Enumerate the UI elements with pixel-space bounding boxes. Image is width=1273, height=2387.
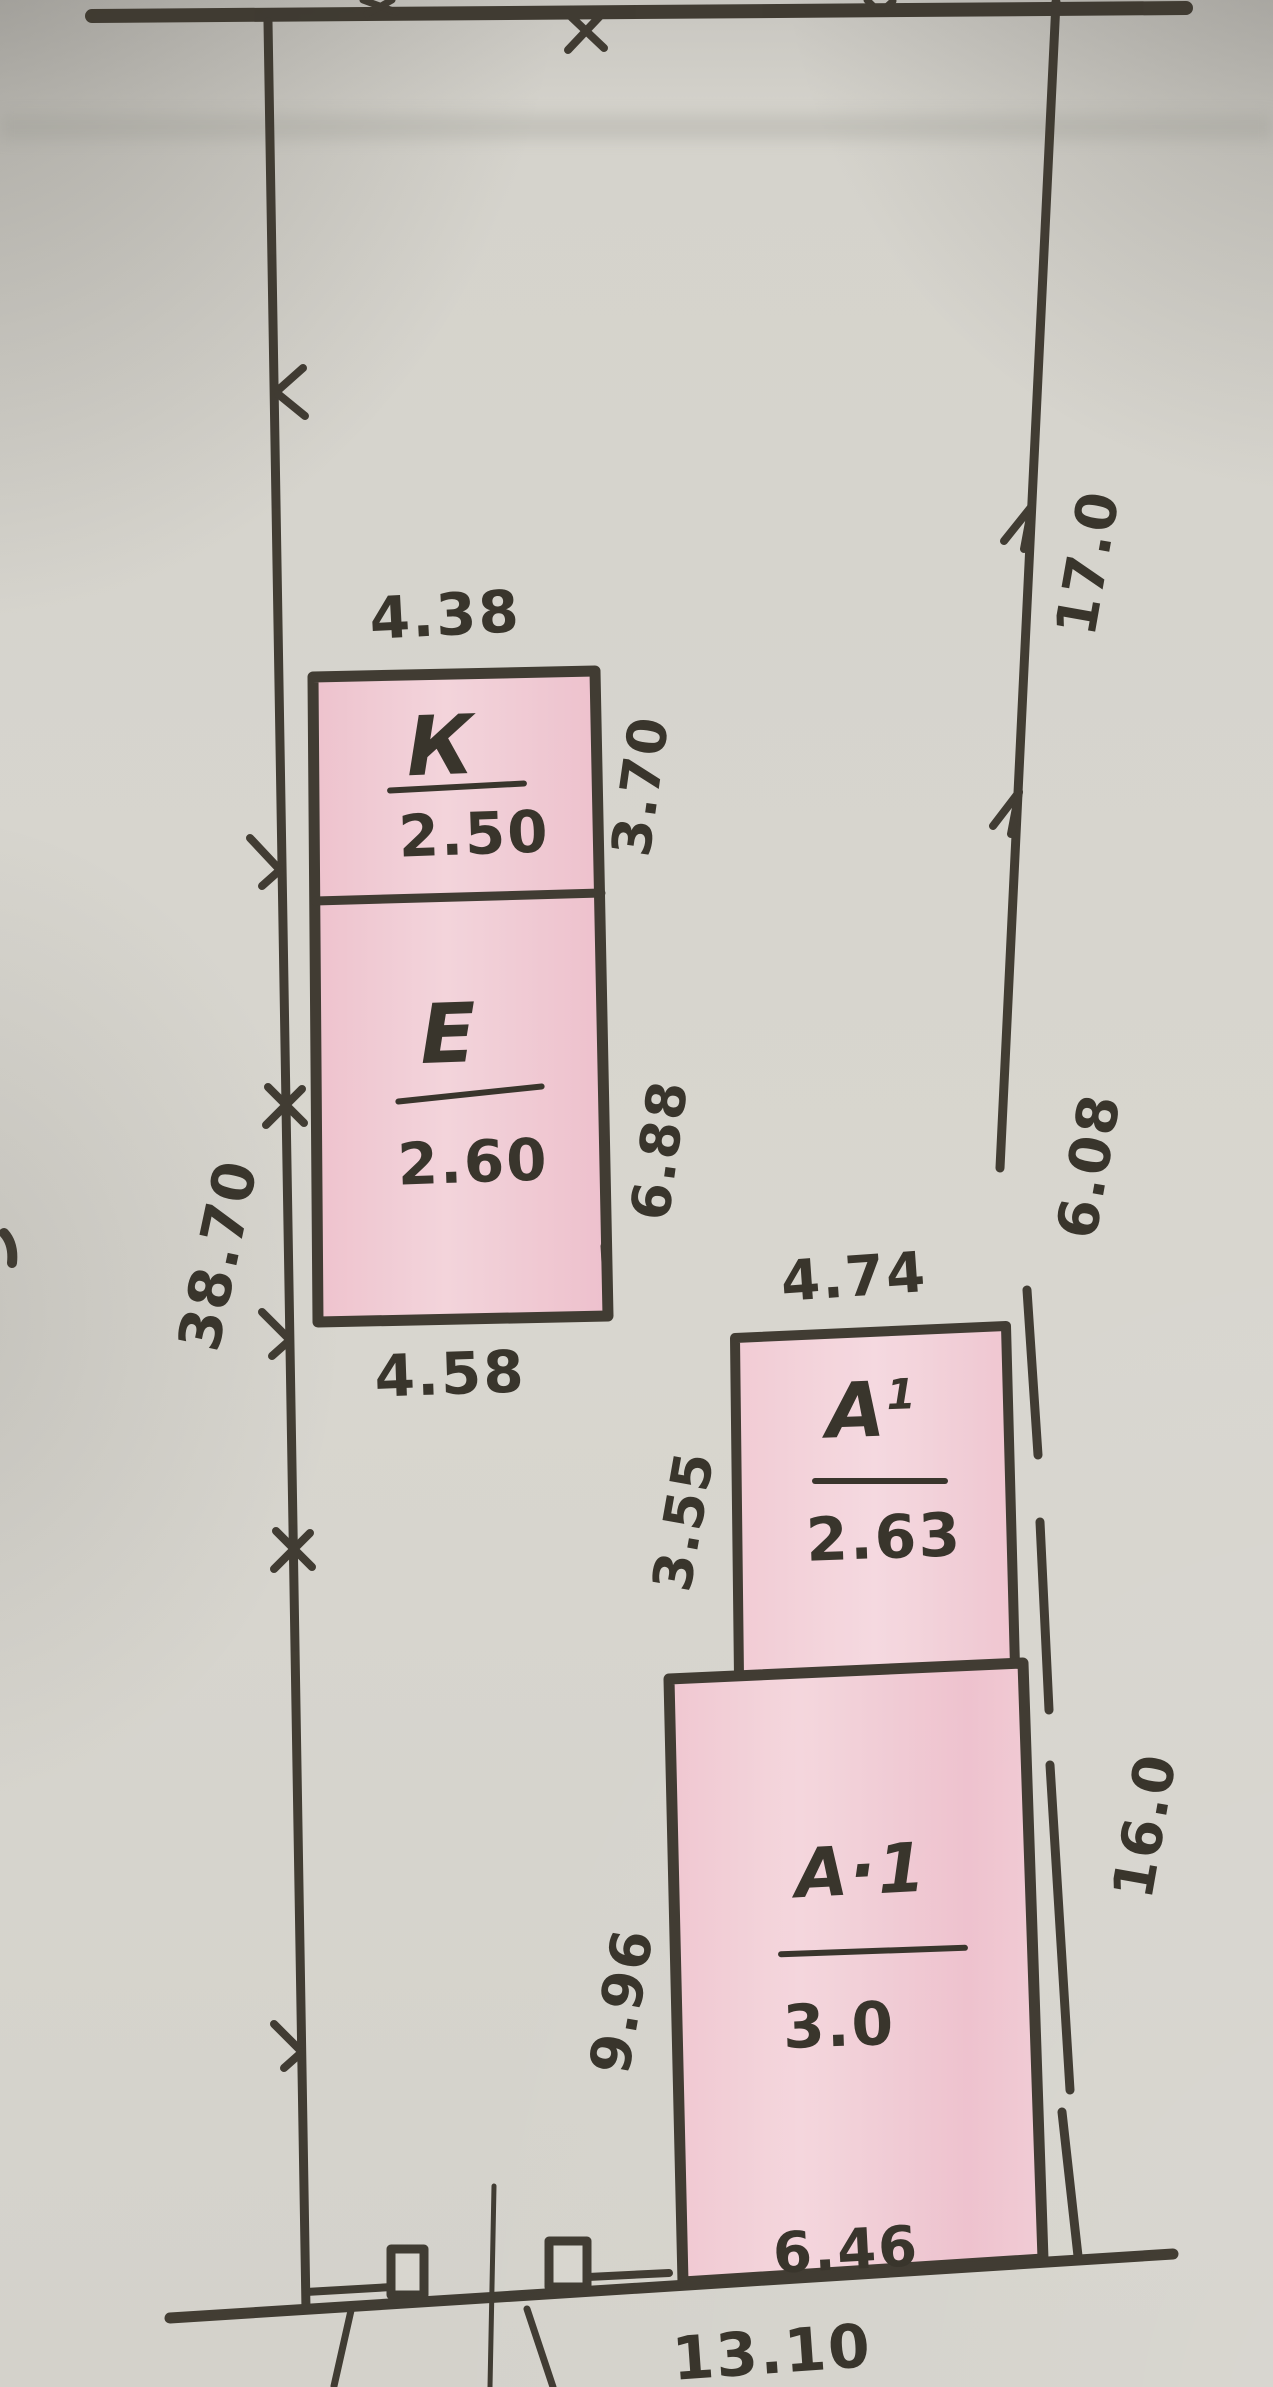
boundary-top-line <box>92 8 1186 16</box>
boundary-bottom-line <box>170 2254 1173 2318</box>
building-e-value: 2.60 <box>396 1130 549 1193</box>
building-a1-upper-fraction-line <box>812 1478 948 1484</box>
building-a1-upper-letter: А1 <box>825 1370 920 1449</box>
building-a1-lower-value: 3.0 <box>782 1994 896 2058</box>
building-a1-upper-letter-superscript: 1 <box>885 1369 918 1419</box>
dim-building-e-bottom-width: 4.58 <box>373 1342 526 1405</box>
building-a1-upper-value: 2.63 <box>805 1505 963 1570</box>
gate-post-symbol-right <box>549 2241 587 2287</box>
fence-segment-right <box>588 2273 669 2277</box>
edge-pen-mark <box>4 1233 12 1263</box>
building-k-letter: К <box>405 705 477 789</box>
gate-post-symbol-left <box>391 2249 424 2295</box>
stray-pen-mark <box>604 1246 607 1294</box>
building-k-value: 2.50 <box>397 802 550 865</box>
site-plan-photo: 4.38 К 2.50 3.70 Е 2.60 6.88 4.58 38.70 … <box>0 0 1273 2387</box>
building-e-letter: Е <box>419 993 480 1077</box>
building-a1-lower-letter: А·1 <box>793 1835 928 1910</box>
dim-building-a1-upper-top-width: 4.74 <box>779 1245 929 1311</box>
boundary-right-line <box>1000 2 1056 1168</box>
fence-segment-left <box>306 2287 392 2292</box>
dim-building-k-top-width: 4.38 <box>368 582 522 648</box>
dim-building-a1-lower-bottom-width: 6.46 <box>772 2219 921 2283</box>
building-a1-lower-outline <box>669 1663 1043 2282</box>
dim-bottom-boundary-length: 13.10 <box>670 2316 873 2387</box>
building-a1-upper-letter-main: А <box>824 1365 888 1456</box>
